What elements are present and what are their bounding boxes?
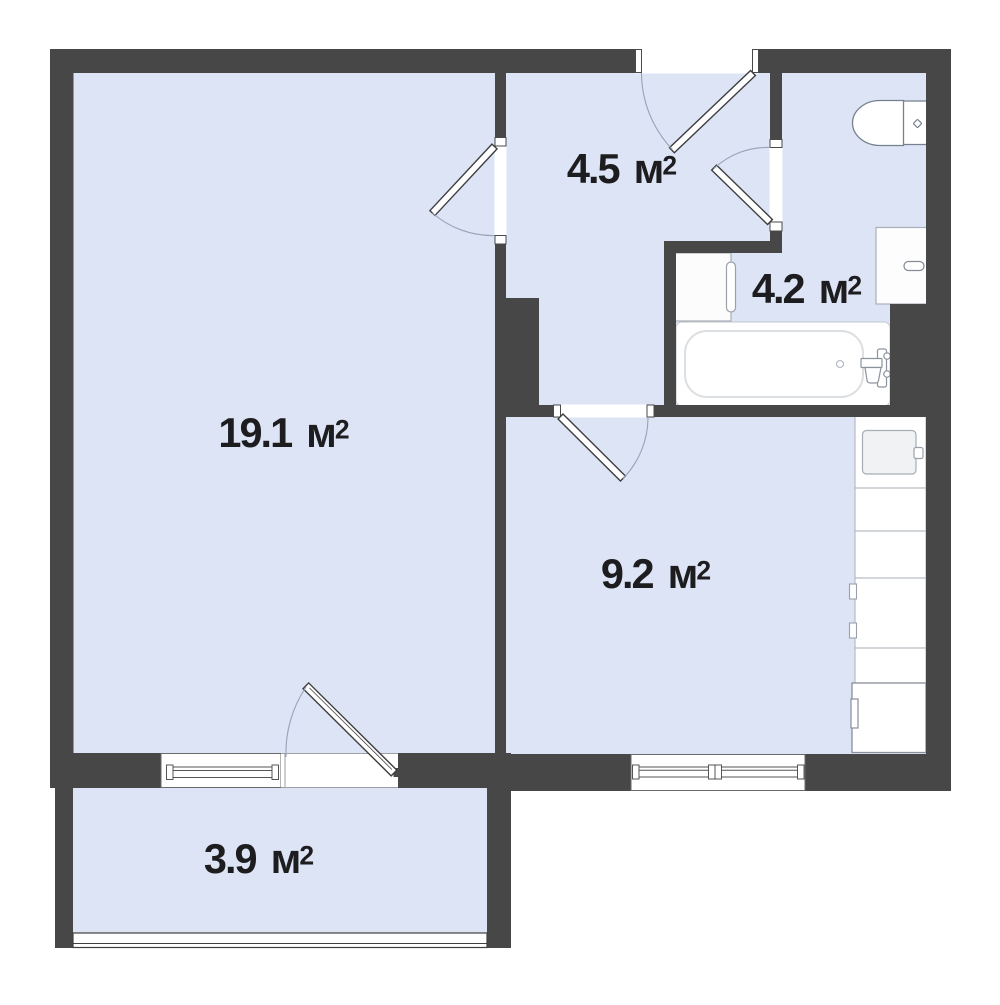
svg-text:19.1м2: 19.1м2 [218,409,348,456]
